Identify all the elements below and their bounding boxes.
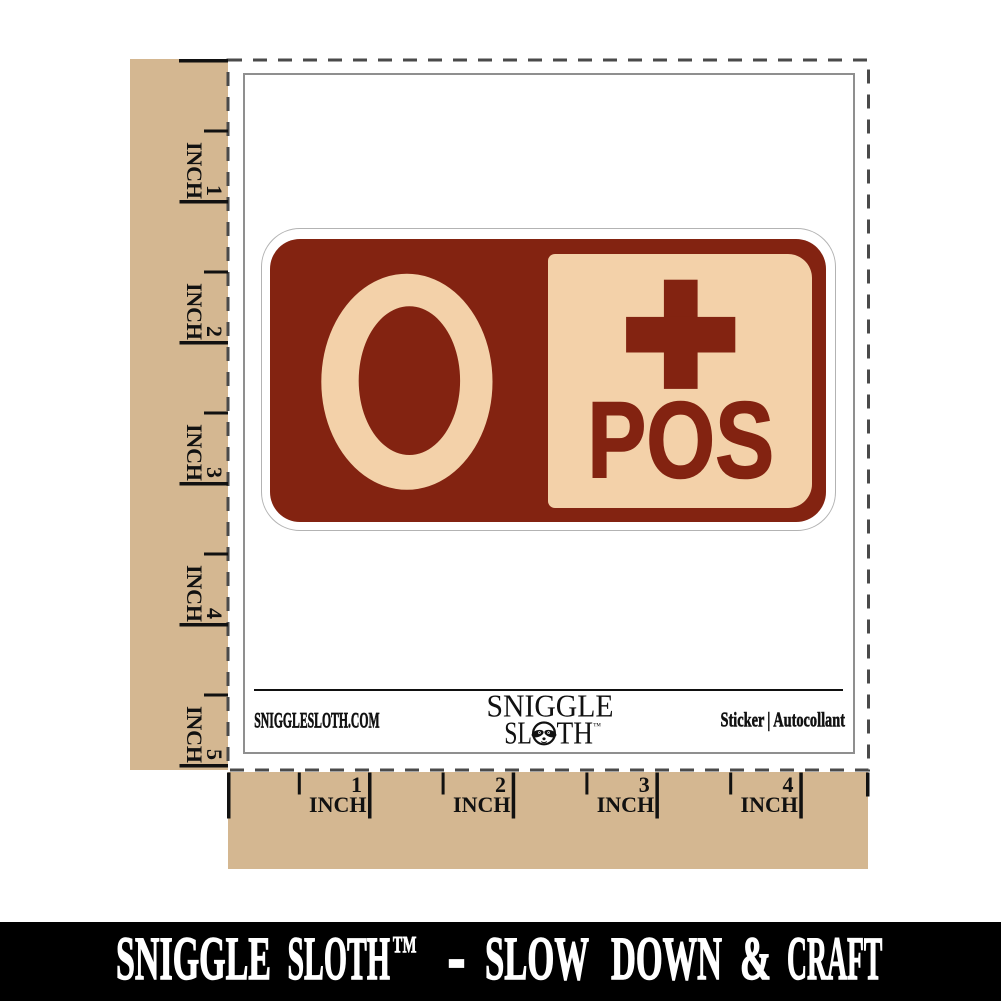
svg-text:INCH: INCH xyxy=(741,792,798,817)
svg-text:CRAFT: CRAFT xyxy=(787,926,882,993)
svg-text:SL: SL xyxy=(504,716,532,751)
svg-text:INCH: INCH xyxy=(309,792,366,817)
svg-text:TH: TH xyxy=(557,716,594,751)
svg-text:™: ™ xyxy=(593,722,601,731)
svg-text:1: 1 xyxy=(202,185,227,196)
svg-text:SNIGGLESLOTH.COM: SNIGGLESLOTH.COM xyxy=(254,707,379,732)
svg-text:&: & xyxy=(740,926,771,993)
svg-text:INCH: INCH xyxy=(597,792,654,817)
svg-text:Sticker | Autocollant: Sticker | Autocollant xyxy=(721,707,846,731)
svg-text:3: 3 xyxy=(202,467,227,478)
svg-text:DOWN: DOWN xyxy=(611,926,722,993)
svg-text:™: ™ xyxy=(392,927,417,972)
svg-text:4: 4 xyxy=(202,608,227,619)
svg-text:SLOW: SLOW xyxy=(485,926,589,993)
svg-text:INCH: INCH xyxy=(453,792,510,817)
svg-text:SLOTH: SLOTH xyxy=(288,926,391,993)
svg-text:POS: POS xyxy=(587,380,774,502)
svg-text:2: 2 xyxy=(202,326,227,337)
svg-text:5: 5 xyxy=(202,749,227,760)
svg-text:SNIGGLE: SNIGGLE xyxy=(116,926,271,993)
